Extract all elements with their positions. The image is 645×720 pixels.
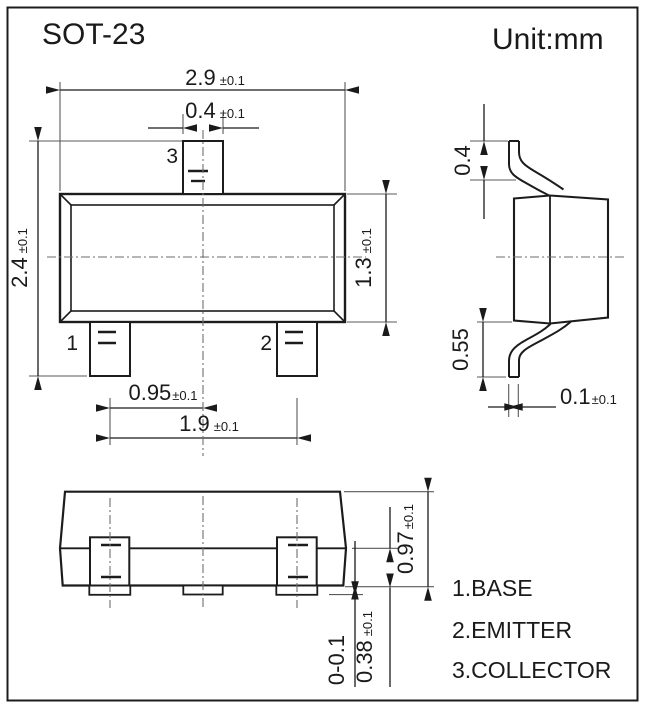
pin-legend: 1.BASE 2.EMITTER 3.COLLECTOR [452, 575, 611, 683]
side-view: 0.4 0.55 0.1±0.1 [448, 104, 625, 417]
dim-lead-pitch: 0.95±0.1 [128, 380, 197, 405]
legend-base: 1.BASE [452, 575, 533, 601]
side-view-extension-lines [470, 141, 518, 417]
dim-front-height: 0.97±0.1 [393, 504, 418, 574]
top-view: 2.9±0.1 0.4±0.1 2.4±0.1 1.3±0.1 0.95±0.1… [7, 65, 397, 456]
pin3-label: 3 [166, 145, 178, 168]
dim-side-top-lead: 0.4 [450, 145, 475, 176]
dim-body-width: 2.9±0.1 [185, 65, 245, 90]
pin2-label: 2 [260, 332, 272, 355]
pin-1 [90, 322, 130, 376]
package-drawing: SOT-23 Unit:mm [0, 0, 645, 715]
side-view-top-lead [509, 141, 564, 197]
dim-lead-width: 0.4±0.1 [185, 98, 245, 123]
dim-standoff: 0.1±0.1 [560, 384, 617, 409]
side-view-body [514, 196, 608, 324]
dim-body-height: 1.3±0.1 [351, 228, 376, 288]
front-view: 0.97±0.1 0-0.1 0.38±0.1 [60, 492, 434, 687]
unit-label: Unit:mm [492, 23, 604, 56]
page-title: SOT-23 [42, 18, 145, 51]
dim-front-lead: 0.38±0.1 [352, 611, 377, 683]
datasheet-page: SOT-23 Unit:mm [0, 0, 645, 715]
dim-side-bottom-lead: 0.55 [448, 328, 473, 371]
legend-collector: 3.COLLECTOR [452, 657, 611, 683]
side-view-bottom-lead [509, 322, 571, 378]
dim-front-standoff: 0-0.1 [324, 635, 349, 685]
dim-lead-span: 1.9±0.1 [179, 411, 239, 436]
legend-emitter: 2.EMITTER [452, 617, 572, 643]
pin1-label: 1 [66, 332, 78, 355]
pin-2 [277, 322, 317, 376]
dim-overall-height: 2.4±0.1 [7, 228, 32, 288]
